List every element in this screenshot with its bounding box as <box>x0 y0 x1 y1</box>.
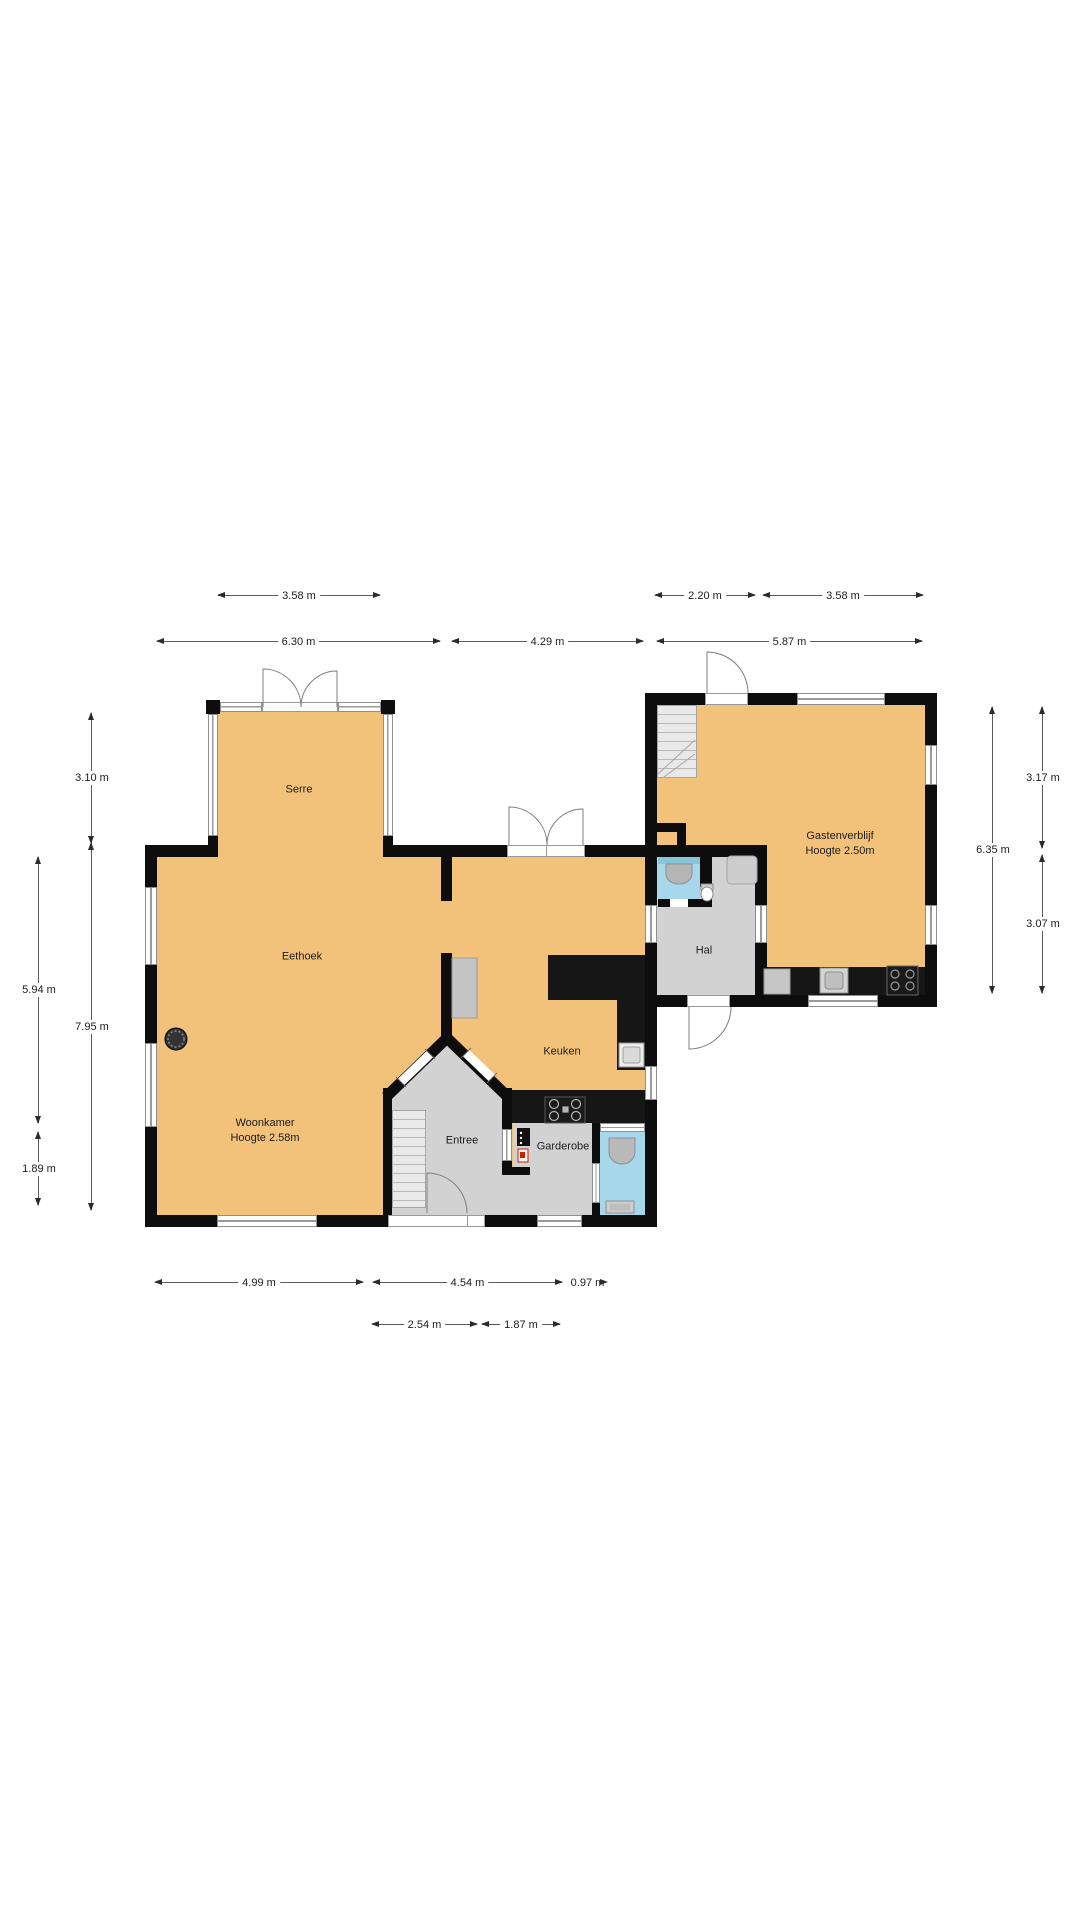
door-arcs <box>263 652 748 1213</box>
dim-label: 3.58 m <box>822 590 864 602</box>
front-door-leaf <box>427 1173 467 1213</box>
dim-label: 3.58 m <box>278 590 320 602</box>
room-label-keuken: Keuken <box>543 1045 580 1060</box>
guest-sink-basin <box>825 972 843 989</box>
dim-label: 4.29 m <box>527 636 569 648</box>
dim-gap-width: 4.29 m <box>452 641 643 642</box>
dim-bottom-mid: 4.54 m <box>373 1282 562 1283</box>
dim-bottom-inner-left: 2.54 m <box>372 1324 477 1325</box>
room-label-serre: Serre <box>286 783 313 798</box>
dim-main-depth: 7.95 m <box>91 843 92 1210</box>
dim-serre-width: 3.58 m <box>218 595 380 596</box>
gastenverblijf-height: Hoogte 2.50m <box>805 844 874 859</box>
dim-right-upper: 3.17 m <box>1042 707 1043 848</box>
guest-entry-door-leaf <box>707 652 748 693</box>
dim-label: 4.54 m <box>447 1277 489 1289</box>
room-label-gastenverblijf: Gastenverblijf Hoogte 2.50m <box>805 829 874 859</box>
dim-label: 1.87 m <box>500 1319 542 1331</box>
bathroom-radiator-inner <box>610 1204 630 1211</box>
dim-left-upper: 5.94 m <box>38 857 39 1123</box>
keuken-name: Keuken <box>543 1046 580 1058</box>
terrace-door-leaf-right <box>547 809 583 845</box>
dim-label: 5.87 m <box>769 636 811 648</box>
bathroom-sink <box>609 1138 635 1164</box>
dim-label: 7.95 m <box>72 1020 112 1034</box>
dim-left-lower: 1.89 m <box>38 1132 39 1205</box>
kitchen-sink-basin <box>623 1047 640 1063</box>
stair-winder-line <box>664 754 695 777</box>
dim-bottom-right: 0.97 m <box>568 1282 607 1283</box>
serre-name: Serre <box>286 784 313 796</box>
room-label-garderobe: Garderobe <box>537 1140 590 1155</box>
dim-label: 1.89 m <box>19 1162 59 1176</box>
meter-dot <box>520 1132 522 1134</box>
dim-guest-upper-width: 3.58 m <box>763 595 923 596</box>
toilet-sink <box>666 864 692 884</box>
hal-exit-door-leaf <box>689 1007 731 1049</box>
fuse-box-mark <box>520 1152 525 1158</box>
keuken-cabinet <box>452 958 477 1018</box>
room-label-eethoek: Eethoek <box>282 950 322 965</box>
dim-label: 2.54 m <box>404 1319 446 1331</box>
hal-name: Hal <box>696 945 713 957</box>
room-label-entree: Entree <box>446 1134 478 1149</box>
dim-label: 3.17 m <box>1023 771 1063 785</box>
dim-bottom-left: 4.99 m <box>155 1282 363 1283</box>
gastenverblijf-name: Gastenverblijf <box>805 829 874 844</box>
dim-label: 3.07 m <box>1023 917 1063 931</box>
eethoek-name: Eethoek <box>282 951 322 963</box>
dim-label: 0.97 m <box>567 1277 609 1289</box>
floorplan-canvas: Serre Eethoek Woonkamer Hoogte 2.58m Keu… <box>0 0 1080 1920</box>
dim-guest-depth: 6.35 m <box>992 707 993 993</box>
guest-hob <box>887 966 918 995</box>
dim-guest-width: 5.87 m <box>657 641 922 642</box>
toilet-bowl <box>701 887 713 901</box>
woonkamer-height: Hoogte 2.58m <box>230 1131 299 1146</box>
dim-label: 4.99 m <box>238 1277 280 1289</box>
dim-label: 5.94 m <box>19 983 59 997</box>
entree-diagonal-door-left <box>401 1054 430 1082</box>
meter-dot <box>520 1137 522 1139</box>
room-label-hal: Hal <box>696 944 713 959</box>
serre-door-leaf-left <box>263 669 301 707</box>
garderobe-name: Garderobe <box>537 1141 590 1153</box>
dim-guest-entry-width: 2.20 m <box>655 595 755 596</box>
dim-bottom-inner-right: 1.87 m <box>482 1324 560 1325</box>
woonkamer-name: Woonkamer <box>230 1116 299 1131</box>
dim-label: 6.30 m <box>278 636 320 648</box>
guest-cabinet <box>764 969 790 994</box>
dim-label: 3.10 m <box>72 771 112 785</box>
fixtures-overlay <box>0 0 1080 1920</box>
meter-dot <box>520 1142 522 1144</box>
dim-right-lower: 3.07 m <box>1042 855 1043 993</box>
hal-cabinet <box>727 856 757 884</box>
dim-label: 6.35 m <box>973 843 1013 857</box>
room-label-woonkamer: Woonkamer Hoogte 2.58m <box>230 1116 299 1146</box>
dim-label: 2.20 m <box>684 590 726 602</box>
entree-name: Entree <box>446 1135 478 1147</box>
serre-door-leaf-right <box>301 671 337 707</box>
stair-winder-line <box>658 740 695 774</box>
dim-main-width: 6.30 m <box>157 641 440 642</box>
meter-cabinet <box>517 1128 530 1146</box>
terrace-door-leaf-left <box>509 807 547 845</box>
dim-serre-depth: 3.10 m <box>91 713 92 843</box>
